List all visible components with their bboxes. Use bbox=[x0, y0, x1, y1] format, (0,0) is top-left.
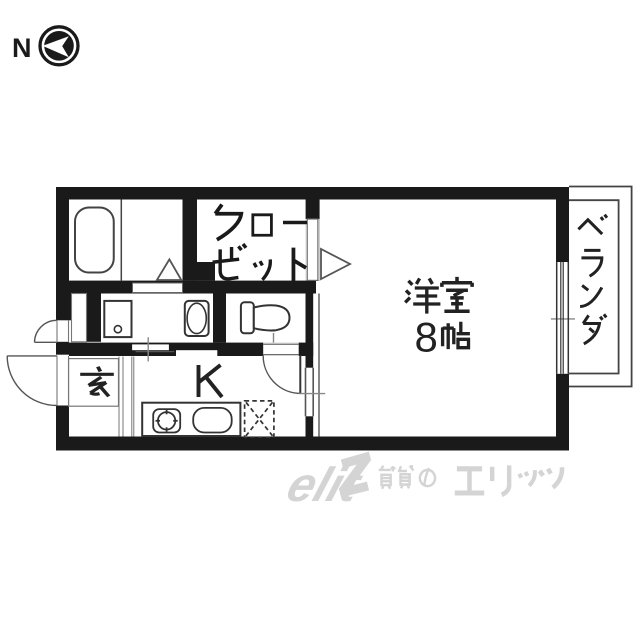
svg-text:8: 8 bbox=[415, 314, 438, 361]
svg-text:N: N bbox=[12, 33, 32, 63]
